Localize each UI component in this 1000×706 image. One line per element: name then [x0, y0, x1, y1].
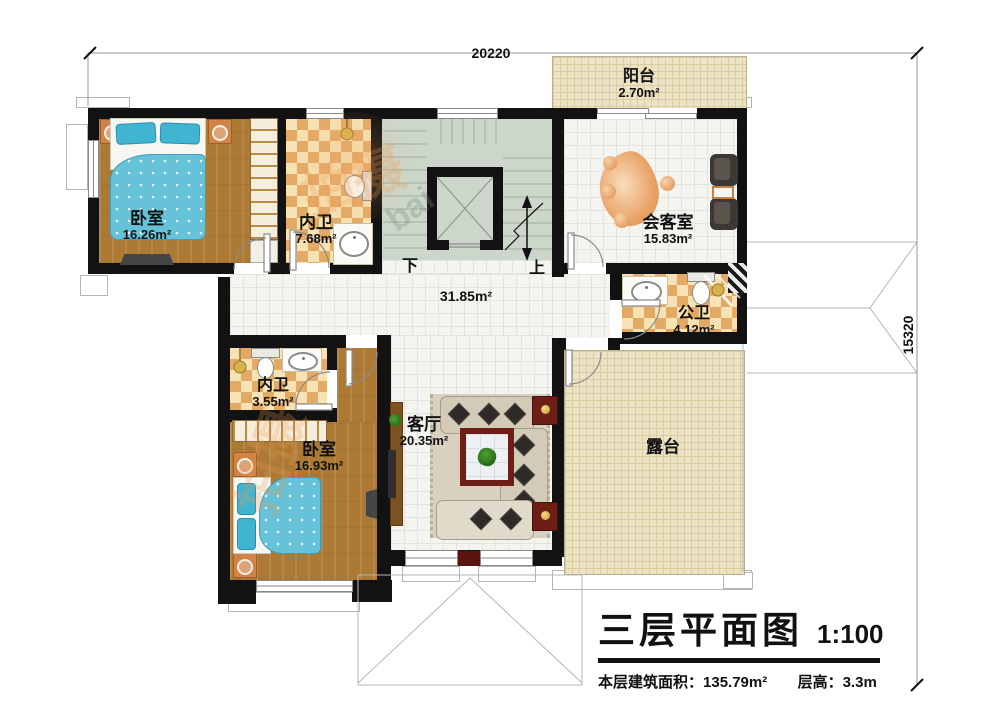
- floor-height-label: 层高：: [798, 674, 843, 691]
- room-label-public-bath: 公卫 4.12m²: [673, 305, 714, 337]
- roof-outline-right: [747, 242, 917, 373]
- title-underline: [598, 658, 880, 663]
- floor-plan: 20220 15320 卧室 16.26m² 内卫 7.68m² 会客室 15.…: [0, 0, 1000, 706]
- room-label-bath1: 内卫 7.68m²: [295, 213, 336, 247]
- room-label-bedroom1: 卧室 16.26m²: [123, 209, 171, 243]
- door-arcs: [234, 230, 660, 410]
- plan-info: 本层建筑面积：135.79m² 层高：3.3m: [598, 671, 928, 692]
- dimension-top: 20220: [472, 46, 511, 62]
- room-label-bedroom2: 卧室 16.93m²: [295, 440, 343, 474]
- room-label-living: 客厅 20.35m²: [400, 415, 448, 449]
- plan-scale: 1:100: [817, 619, 884, 650]
- plan-title: 三层平面图: [598, 600, 803, 654]
- stair-down-label: 下: [402, 258, 418, 276]
- room-label-reception: 会客室 15.83m²: [643, 213, 694, 247]
- floor-area-label: 本层建筑面积：: [598, 674, 703, 691]
- title-block: 三层平面图 1:100 本层建筑面积：135.79m² 层高：3.3m: [598, 600, 928, 692]
- roof-outline-bottom: [358, 575, 582, 685]
- room-label-terrace: 露台: [646, 437, 680, 456]
- floor-height-value: 3.3m: [843, 674, 877, 691]
- hall-area-label: 31.85m²: [440, 289, 492, 305]
- room-label-balcony: 阳台 2.70m²: [618, 68, 659, 100]
- elevator-x-icon: [437, 177, 493, 247]
- dimension-lines: [88, 53, 917, 685]
- dimension-ticks: [84, 47, 923, 691]
- dimension-right: 15320: [901, 316, 917, 355]
- stair-arrow-icon: [505, 195, 543, 261]
- room-label-bath2: 内卫 3.55m²: [252, 377, 293, 409]
- stair-up-label: 上: [529, 260, 545, 278]
- floor-area-value: 135.79m²: [703, 674, 767, 691]
